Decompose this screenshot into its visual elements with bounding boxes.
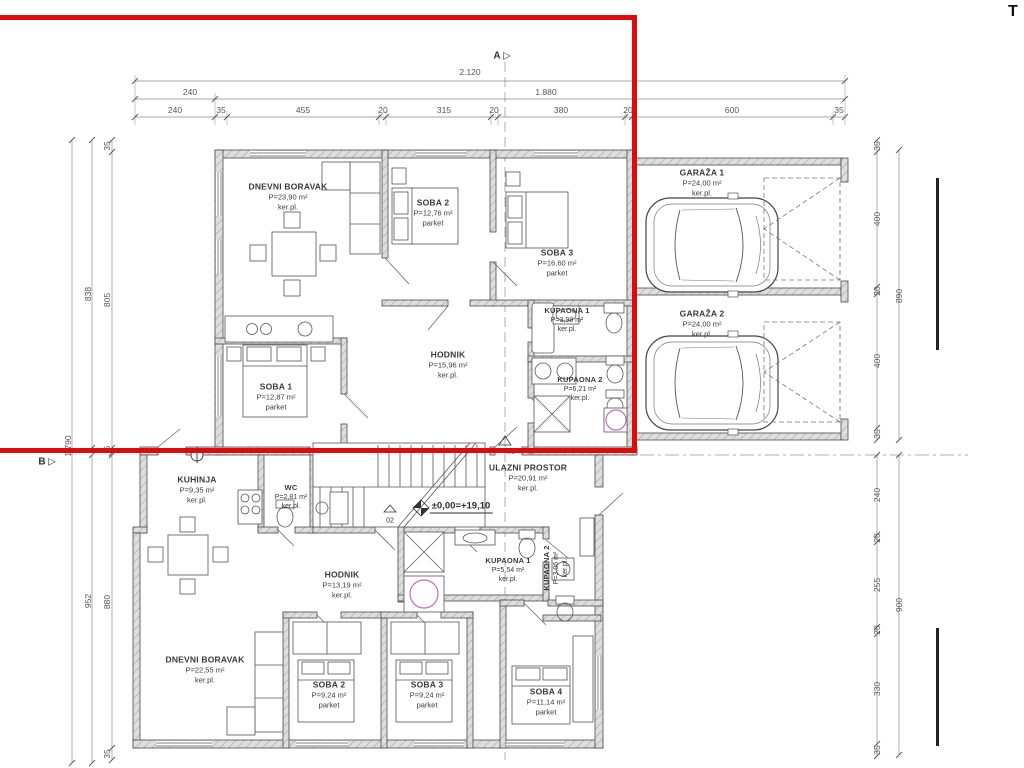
section-marker-a: A [493, 51, 500, 62]
dim-t3-7: 20 [623, 105, 632, 115]
room-area: P=13,19 m² [323, 581, 362, 591]
room-label-garaza1: GARAŽA 1 P=24,00 m² ker.pl. [680, 168, 725, 199]
dim-t3-5: 20 [489, 105, 498, 115]
room-name: SOBA 2 [312, 680, 347, 691]
room-name: KUPAONA 2 [557, 375, 602, 385]
dim-left-838: 838 [83, 287, 93, 301]
corner-letter: T [1008, 3, 1018, 21]
room-label-garaza2: GARAŽA 2 P=24,00 m² ker.pl. [680, 309, 725, 340]
dim-left-952: 952 [83, 594, 93, 608]
room-floor: parket [538, 269, 577, 279]
dim-left-880: 880 [102, 595, 112, 609]
room-name: KUHINJA [177, 475, 216, 486]
room-area: P=2,81 m² [275, 493, 308, 502]
dim-t3-8: 600 [725, 105, 739, 115]
dim-t3-2: 455 [296, 105, 310, 115]
room-label-soba3-lower: SOBA 3 P=9,24 m² parket [410, 680, 445, 711]
dim-ru-890: 890 [894, 289, 904, 303]
room-floor: ker.pl. [275, 502, 308, 511]
room-name: KUPAONA 1 [485, 556, 530, 566]
room-name: GARAŽA 2 [680, 309, 725, 320]
dim-left-35b: 35 [102, 749, 112, 758]
room-label-wc: WC P=2,81 m² ker.pl. [275, 483, 308, 511]
floor-plan-page: DNEVNI BORAVAK P=23,90 m² ker.pl. SOBA 2… [0, 0, 1024, 768]
room-area: P=24,00 m² [680, 320, 725, 330]
room-area: P=9,24 m² [410, 691, 445, 701]
room-label-kupaona1-lower: KUPAONA 1 P=5,54 m² ker.pl. [485, 556, 530, 584]
room-floor: ker.pl. [177, 496, 216, 506]
room-label-hodnik-lower: HODNIK P=13,19 m² ker.pl. [323, 570, 362, 601]
room-floor: parket [312, 701, 347, 711]
dim-top-1880: 1.880 [535, 87, 556, 97]
room-label-dnevni-boravak-upper: DNEVNI BORAVAK P=23,90 m² ker.pl. [249, 182, 328, 213]
room-label-soba4-lower: SOBA 4 P=11,14 m² parket [527, 687, 565, 718]
room-area: P=12,76 m² [414, 209, 453, 219]
dim-left-5: 5 [102, 446, 112, 451]
room-label-soba2-upper: SOBA 2 P=12,76 m² parket [414, 198, 453, 229]
room-name: SOBA 2 [414, 198, 453, 209]
room-name: ULAZNI PROSTOR [489, 463, 567, 474]
room-name: HODNIK [323, 570, 362, 581]
room-name: SOBA 3 [538, 248, 577, 259]
room-name: KUPAONA 2 [542, 545, 552, 590]
room-floor: parket [257, 403, 296, 413]
room-label-hodnik-upper: HODNIK P=15,96 m² ker.pl. [429, 350, 468, 381]
room-name: SOBA 1 [257, 382, 296, 393]
dim-left-1790: 1.790 [63, 435, 73, 456]
dim-ru-4: 35 [872, 429, 882, 438]
room-label-soba3-upper: SOBA 3 P=16,60 m² parket [538, 248, 577, 279]
room-area: P=15,96 m² [429, 361, 468, 371]
dim-rl-0: 240 [872, 488, 882, 502]
dim-left-805: 805 [102, 293, 112, 307]
room-name: DNEVNI BORAVAK [166, 655, 245, 666]
dim-ru-3: 400 [872, 354, 882, 368]
room-name: SOBA 4 [527, 687, 565, 698]
section-marker-b: B [38, 457, 45, 468]
room-label-soba2-lower: SOBA 2 P=9,24 m² parket [312, 680, 347, 711]
dim-rl-900: 900 [894, 598, 904, 612]
room-floor: parket [410, 701, 445, 711]
room-label-soba1-upper: SOBA 1 P=12,87 m² parket [257, 382, 296, 413]
room-floor: ker.pl. [680, 189, 725, 199]
dim-rl-3: 20 [872, 625, 882, 634]
dim-ru-2: 20 [872, 286, 882, 295]
room-floor: parket [527, 708, 565, 718]
room-name: GARAŽA 1 [680, 168, 725, 179]
room-floor: ker.pl. [166, 676, 245, 686]
dim-t3-0: 240 [168, 105, 182, 115]
room-floor: ker.pl. [544, 325, 589, 334]
room-area: P=3,06 m² [552, 545, 561, 590]
dim-ru-1: 400 [872, 212, 882, 226]
room-floor: ker.pl. [561, 545, 570, 590]
room-area: P=20,91 m² [489, 474, 567, 484]
dim-t3-3: 20 [378, 105, 387, 115]
door-tag-01: 01 [507, 449, 515, 456]
room-label-ulazni-prostor: ULAZNI PROSTOR P=20,91 m² ker.pl. [489, 463, 567, 494]
dim-left-35t: 35 [102, 141, 112, 150]
room-floor: ker.pl. [249, 203, 328, 213]
room-label-kupaona1-upper: KUPAONA 1 P=3,98 m² ker.pl. [544, 306, 589, 334]
dim-t3-1: 35 [216, 105, 225, 115]
dim-rl-5: 35 [872, 745, 882, 754]
room-floor: ker.pl. [557, 394, 602, 403]
room-label-dnevni-boravak-lower: DNEVNI BORAVAK P=22,55 m² ker.pl. [166, 655, 245, 686]
room-name: WC [275, 483, 308, 493]
room-floor: ker.pl. [680, 330, 725, 340]
section-marker-b-arrow-icon: ▷ [48, 457, 56, 468]
dim-rl-2: 255 [872, 578, 882, 592]
room-floor: ker.pl. [323, 591, 362, 601]
level-mark: ±0,00=+19,10 [430, 501, 493, 514]
room-area: P=24,00 m² [680, 179, 725, 189]
room-floor: ker.pl. [429, 371, 468, 381]
room-area: P=12,87 m² [257, 393, 296, 403]
floor-plan-drawing [0, 0, 1024, 768]
dim-rl-1: 20 [872, 533, 882, 542]
room-area: P=16,60 m² [538, 259, 577, 269]
room-area: P=6,21 m² [557, 385, 602, 394]
dim-top-total: 2.120 [459, 67, 480, 77]
dim-t3-6: 380 [554, 105, 568, 115]
dim-top-240: 240 [183, 87, 197, 97]
room-name: HODNIK [429, 350, 468, 361]
dim-rl-4: 330 [872, 682, 882, 696]
section-marker-a-arrow-icon: ▷ [503, 51, 511, 62]
room-label-kupaona2-lower: KUPAONA 2 P=3,06 m² ker.pl. [542, 545, 570, 590]
room-floor: ker.pl. [485, 575, 530, 584]
dim-t3-4: 315 [437, 105, 451, 115]
door-tag-02: 02 [386, 518, 394, 525]
room-area: P=11,14 m² [527, 698, 565, 708]
room-area: P=5,54 m² [485, 566, 530, 575]
room-label-kuhinja: KUHINJA P=9,35 m² ker.pl. [177, 475, 216, 506]
room-name: KUPAONA 1 [544, 306, 589, 316]
room-name: DNEVNI BORAVAK [249, 182, 328, 193]
room-label-kupaona2-upper: KUPAONA 2 P=6,21 m² ker.pl. [557, 375, 602, 403]
room-area: P=9,35 m² [177, 486, 216, 496]
dim-t3-9: 35 [834, 105, 843, 115]
room-area: P=23,90 m² [249, 193, 328, 203]
dim-ru-0: 35 [872, 141, 882, 150]
room-area: P=9,24 m² [312, 691, 347, 701]
room-floor: parket [414, 219, 453, 229]
room-area: P=22,55 m² [166, 666, 245, 676]
room-name: SOBA 3 [410, 680, 445, 691]
room-floor: ker.pl. [489, 484, 567, 494]
room-area: P=3,98 m² [544, 316, 589, 325]
